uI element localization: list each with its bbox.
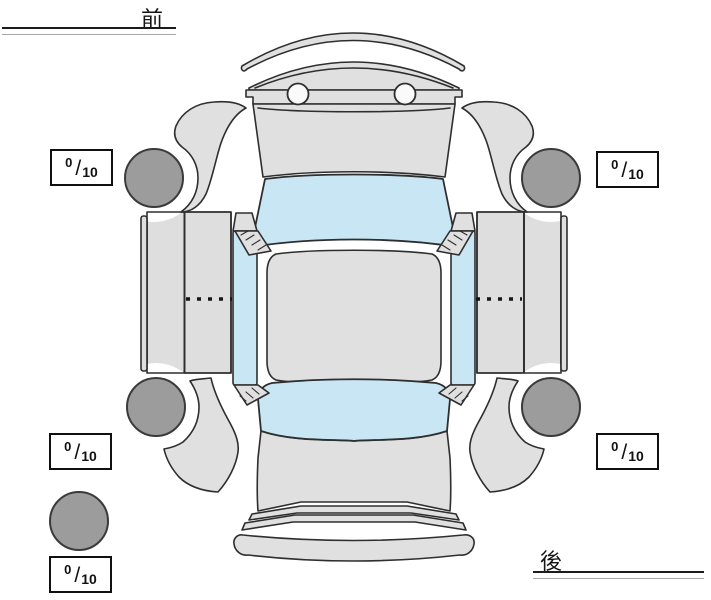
score-box-front-left: 0/10	[50, 149, 113, 186]
score-max: 10	[81, 571, 97, 587]
left-washer-circle	[288, 84, 309, 105]
front-end	[241, 33, 464, 177]
roof	[267, 250, 441, 384]
score-max: 10	[81, 448, 97, 464]
front-label-underline	[2, 27, 176, 35]
score-value: 0	[611, 439, 618, 454]
rear-bumper	[234, 535, 474, 561]
left-sill	[141, 216, 147, 371]
score-max: 10	[628, 166, 644, 182]
score-value: 0	[611, 157, 618, 172]
tire-condition-diagram: 前 後 0/10 0/10 0/10 0/10 0/10	[0, 0, 711, 600]
score-separator: /	[621, 159, 627, 183]
rear-left-tire	[127, 378, 185, 436]
right-pillar-base	[451, 213, 475, 231]
left-pillar-base	[233, 213, 257, 231]
front-right-tire	[522, 149, 580, 207]
score-box-front-right: 0/10	[596, 151, 659, 188]
windshield	[251, 175, 457, 248]
front-left-door-panel	[147, 212, 185, 373]
score-separator: /	[74, 564, 80, 588]
score-box-rear-right: 0/10	[596, 433, 659, 470]
score-value: 0	[65, 155, 72, 170]
score-max: 10	[82, 164, 98, 180]
rear-left-door-panel	[185, 212, 232, 373]
score-separator: /	[621, 441, 627, 465]
car-top-view-illustration	[0, 0, 711, 600]
score-box-spare: 0/10	[49, 556, 112, 593]
rear-right-door-panel	[477, 212, 524, 373]
hood-leading-edge	[246, 90, 462, 104]
front-left-tire	[125, 149, 183, 207]
score-separator: /	[75, 157, 81, 181]
rear-trim-band-lower	[242, 515, 466, 530]
score-box-rear-left: 0/10	[49, 433, 112, 470]
right-sill	[561, 216, 567, 371]
rear-label-underline	[533, 571, 704, 579]
rear-window	[258, 379, 450, 441]
right-washer-circle	[395, 84, 416, 105]
score-separator: /	[74, 441, 80, 465]
score-value: 0	[64, 439, 71, 454]
hood	[253, 104, 455, 177]
front-cowl	[249, 62, 459, 90]
score-max: 10	[628, 448, 644, 464]
front-right-door-panel	[524, 212, 561, 373]
trunk	[257, 431, 451, 511]
rear-end	[234, 431, 474, 561]
score-value: 0	[64, 562, 71, 577]
rear-right-tire	[522, 378, 580, 436]
spare-tire	[50, 492, 108, 550]
